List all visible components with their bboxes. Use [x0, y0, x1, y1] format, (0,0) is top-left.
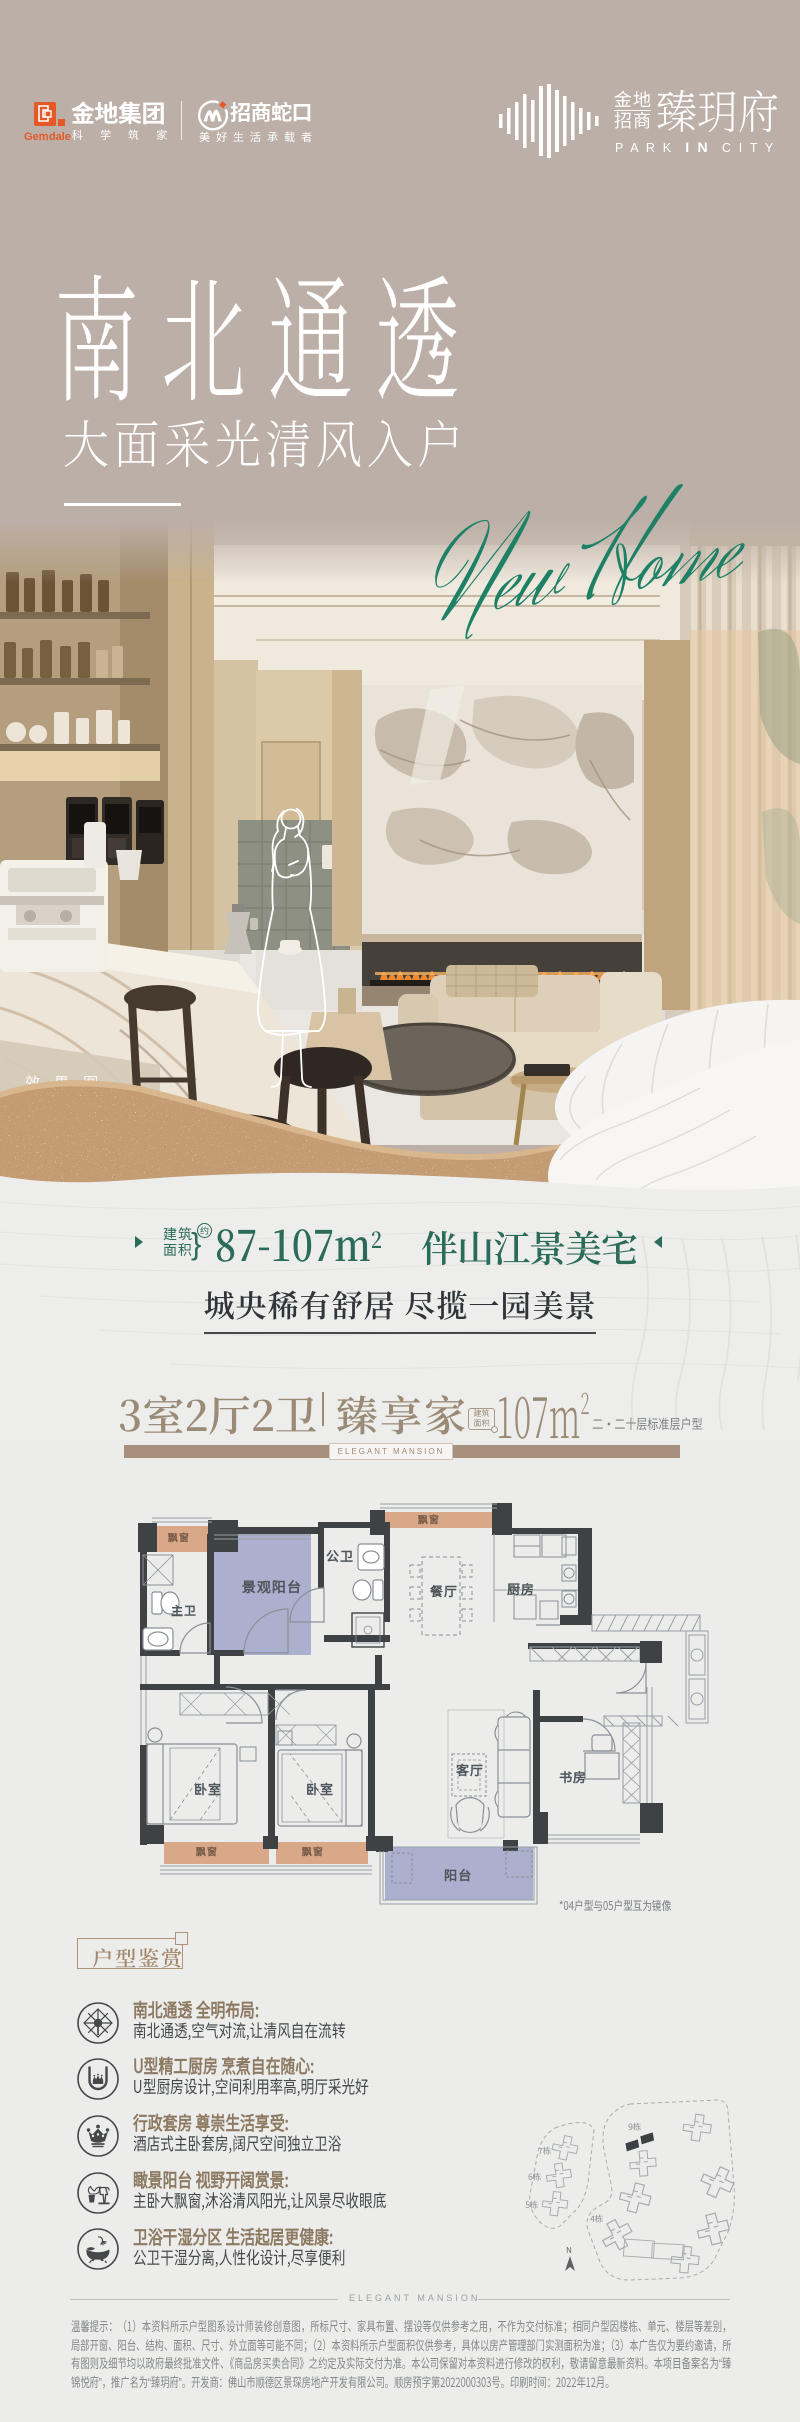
- svg-text:6栋: 6栋: [528, 2171, 542, 2183]
- svg-text:N: N: [566, 2245, 572, 2256]
- svg-text:厨房: 厨房: [506, 1579, 535, 1598]
- svg-text:9栋: 9栋: [628, 2121, 642, 2133]
- svg-text:书房: 书房: [559, 1767, 587, 1786]
- svg-text:5栋: 5栋: [525, 2199, 539, 2211]
- svg-text:飘窗: 飘窗: [195, 1843, 218, 1858]
- svg-text:阳台: 阳台: [444, 1865, 472, 1884]
- svg-text:公卫: 公卫: [326, 1546, 354, 1565]
- svg-text:飘窗: 飘窗: [167, 1529, 190, 1544]
- svg-text:卧室: 卧室: [194, 1779, 222, 1798]
- svg-text:飘窗: 飘窗: [417, 1511, 440, 1526]
- svg-text:餐厅: 餐厅: [429, 1581, 458, 1600]
- svg-text:7栋: 7栋: [538, 2145, 552, 2157]
- svg-text:卧室: 卧室: [306, 1779, 334, 1798]
- svg-text:景观阳台: 景观阳台: [241, 1577, 302, 1597]
- svg-text:主卫: 主卫: [171, 1602, 197, 1619]
- svg-text:4栋: 4栋: [590, 2213, 604, 2225]
- svg-text:飘窗: 飘窗: [301, 1843, 324, 1858]
- svg-text:客厅: 客厅: [455, 1760, 484, 1779]
